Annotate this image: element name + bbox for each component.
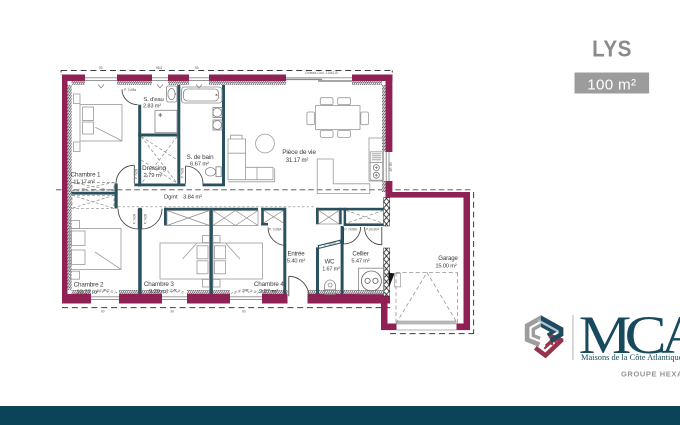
svg-text:90: 90 xyxy=(171,310,175,314)
svg-text:AF. 60: AF. 60 xyxy=(389,162,393,171)
svg-text:S. de bain: S. de bain xyxy=(187,154,215,161)
svg-text:15.00 m²: 15.00 m² xyxy=(435,263,457,269)
svg-text:Maisons de la Côte Atlantique: Maisons de la Côte Atlantique xyxy=(581,353,680,362)
svg-text:Chambre 4: Chambre 4 xyxy=(254,281,284,288)
svg-text:P. 7x08A: P. 7x08A xyxy=(323,240,337,247)
svg-text:10.27 m²: 10.27 m² xyxy=(76,290,98,296)
svg-text:Chambre 1: Chambre 1 xyxy=(71,172,101,179)
svg-text:100 m²: 100 m² xyxy=(587,77,636,94)
svg-text:WC: WC xyxy=(325,259,336,266)
svg-text:11.17 m²: 11.17 m² xyxy=(73,180,95,186)
svg-text:5.47 m²: 5.47 m² xyxy=(351,258,369,264)
svg-text:90: 90 xyxy=(99,66,103,70)
svg-text:9.27 m²: 9.27 m² xyxy=(259,289,278,295)
svg-text:Pièce de vie: Pièce de vie xyxy=(282,149,316,156)
svg-text:90: 90 xyxy=(101,310,105,314)
svg-text:P. 7x08A: P. 7x08A xyxy=(269,227,282,231)
svg-text:Chambre 2: Chambre 2 xyxy=(74,282,104,289)
svg-text:31.17 m²: 31.17 m² xyxy=(286,158,309,164)
svg-text:Entrée: Entrée xyxy=(287,250,305,257)
svg-text:S. d'eau: S. d'eau xyxy=(143,97,163,103)
svg-text:P. 7x08: P. 7x08 xyxy=(132,214,136,225)
svg-text:9.29 m²: 9.29 m² xyxy=(149,289,168,295)
svg-text:Garage: Garage xyxy=(438,255,458,262)
svg-text:90: 90 xyxy=(242,310,246,314)
svg-text:P. 7x08a: P. 7x08a xyxy=(124,88,136,92)
svg-text:P. 7x08: P. 7x08 xyxy=(135,169,139,180)
svg-text:Chambre 3: Chambre 3 xyxy=(144,281,174,288)
svg-text:5.40 m²: 5.40 m² xyxy=(287,259,305,265)
svg-text:6.67 m²: 6.67 m² xyxy=(190,161,209,167)
svg-text:Dgmt: Dgmt xyxy=(164,194,178,200)
svg-text:LYS: LYS xyxy=(592,35,632,61)
svg-text:P. 7x08: P. 7x08 xyxy=(181,168,185,179)
svg-text:58,5: 58,5 xyxy=(156,66,162,70)
svg-text:P.10x204: P.10x204 xyxy=(366,227,379,231)
svg-text:Dressing: Dressing xyxy=(142,165,166,172)
svg-text:3.84 m²: 3.84 m² xyxy=(183,194,202,200)
svg-text:Cellier: Cellier xyxy=(352,250,368,257)
svg-text:2.83 m²: 2.83 m² xyxy=(143,103,161,109)
svg-text:1.67 m²: 1.67 m² xyxy=(322,267,340,273)
svg-text:2.79 m²: 2.79 m² xyxy=(144,173,163,179)
svg-text:Châssis Coul. 215x215: Châssis Coul. 215x215 xyxy=(305,71,338,75)
svg-text:P. 7x08: P. 7x08 xyxy=(144,214,148,225)
svg-text:GROUPE HEXAO: GROUPE HEXAO xyxy=(621,369,680,378)
svg-text:P. 7x08A: P. 7x08A xyxy=(345,227,358,231)
svg-text:59: 59 xyxy=(195,66,199,70)
